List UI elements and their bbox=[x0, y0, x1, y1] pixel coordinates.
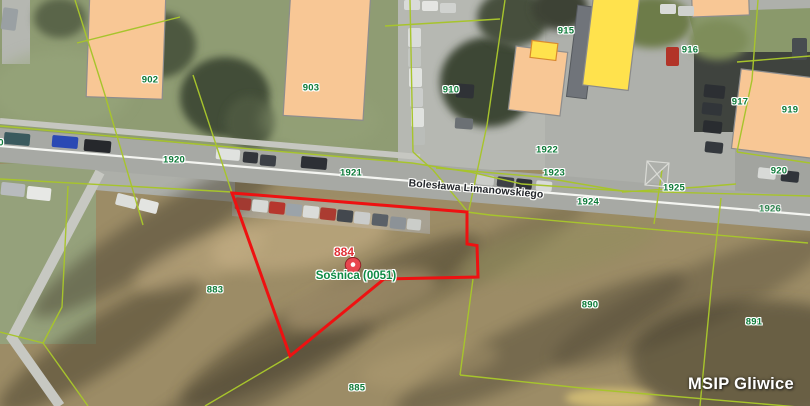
aerial-map-viewport[interactable]: 902 903 910 915 916 917 919 920 1920 192… bbox=[0, 0, 810, 406]
car bbox=[660, 4, 676, 14]
aerial-imagery-layer bbox=[0, 0, 810, 406]
car bbox=[404, 0, 420, 10]
car bbox=[4, 132, 31, 146]
car bbox=[678, 6, 694, 16]
map-pin-hole bbox=[351, 262, 356, 267]
car bbox=[666, 47, 679, 66]
building-902 bbox=[86, 0, 166, 99]
car bbox=[408, 48, 421, 67]
car bbox=[412, 127, 425, 145]
car bbox=[260, 154, 277, 166]
car bbox=[757, 167, 776, 180]
car bbox=[701, 102, 722, 116]
car bbox=[389, 216, 406, 230]
car bbox=[336, 209, 353, 223]
building-915-annex-yellow bbox=[530, 40, 558, 60]
car bbox=[0, 182, 25, 197]
car bbox=[52, 135, 79, 149]
car bbox=[371, 213, 388, 227]
car bbox=[84, 139, 112, 153]
car bbox=[702, 120, 722, 134]
car bbox=[319, 207, 336, 221]
car bbox=[26, 186, 51, 201]
car bbox=[456, 83, 475, 98]
car bbox=[1, 7, 19, 31]
car bbox=[353, 211, 370, 225]
selected-parcel-number-label: 884 bbox=[334, 245, 354, 259]
watermark: MSIP Gliwice bbox=[688, 375, 794, 394]
car bbox=[703, 84, 725, 99]
car bbox=[268, 201, 285, 215]
building-919 bbox=[731, 69, 810, 159]
car bbox=[440, 3, 456, 13]
tree bbox=[688, 20, 748, 60]
building-top-right bbox=[692, 0, 750, 17]
car bbox=[302, 205, 319, 219]
car bbox=[422, 1, 438, 11]
car bbox=[704, 141, 723, 154]
building-903 bbox=[283, 0, 371, 120]
car bbox=[406, 218, 421, 230]
car bbox=[780, 170, 799, 183]
car bbox=[251, 199, 268, 213]
selected-parcel-district-label: Sośnica (0051) bbox=[316, 270, 397, 282]
car bbox=[301, 156, 328, 170]
car bbox=[243, 151, 259, 163]
car bbox=[285, 203, 302, 217]
car bbox=[455, 117, 474, 129]
